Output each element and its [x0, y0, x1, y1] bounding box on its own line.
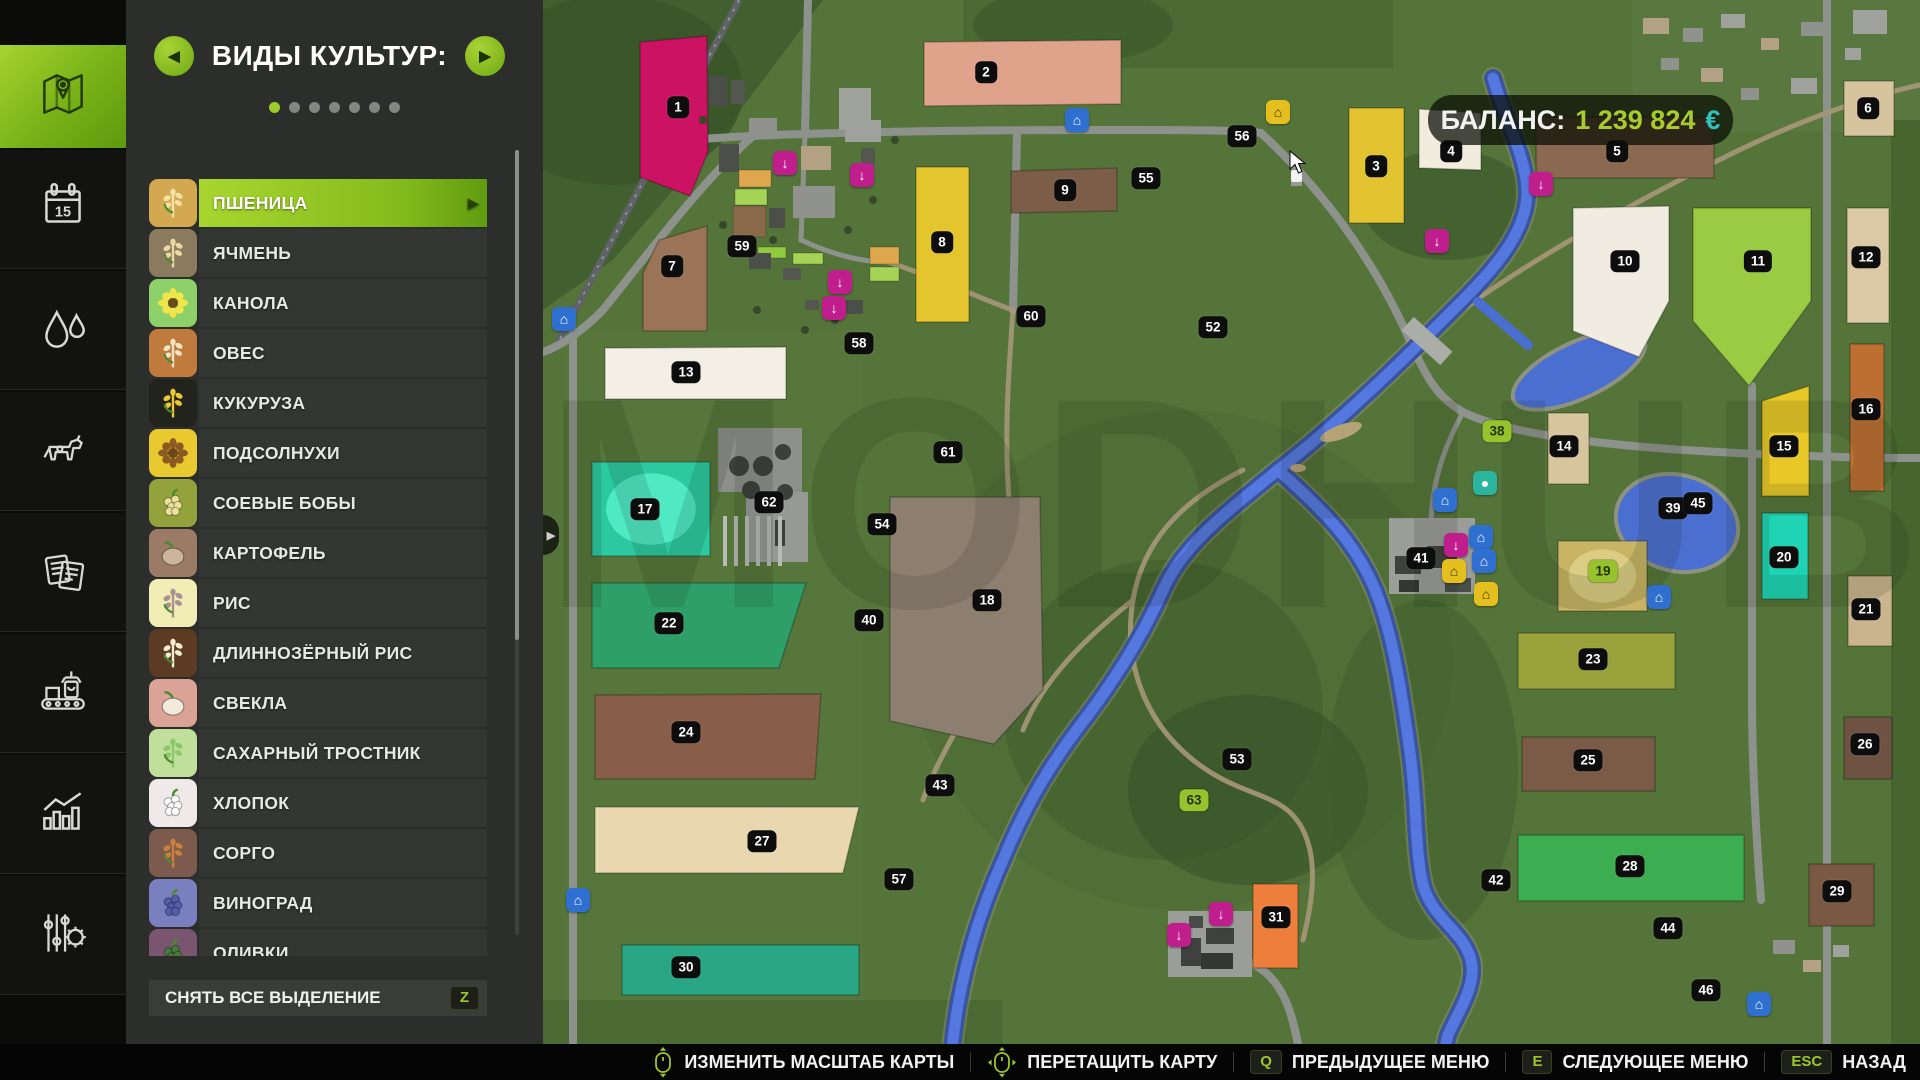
- field-number-badge-16[interactable]: 16: [1851, 398, 1880, 420]
- crop-icon: [149, 679, 197, 727]
- crop-item-11[interactable]: САХАРНЫЙ ТРОСТНИК: [149, 729, 487, 777]
- crop-icon: [149, 929, 197, 956]
- crop-item-5[interactable]: ПОДСОЛНУХИ: [149, 429, 487, 477]
- field-number-badge-27[interactable]: 27: [747, 830, 776, 852]
- keycap-esc: ESC: [1781, 1050, 1832, 1074]
- page-dot-4[interactable]: [349, 102, 360, 113]
- farmhouse-icon[interactable]: ⌂: [1442, 559, 1466, 583]
- field-number-badge-43[interactable]: 43: [925, 774, 954, 796]
- sidebar-contracts-tab[interactable]: [0, 513, 126, 632]
- currency-symbol: €: [1705, 105, 1720, 136]
- hint-mouse-drag-icon[interactable]: ПЕРЕТАЩИТЬ КАРТУ: [987, 1046, 1217, 1078]
- animal-pen-icon[interactable]: ●: [1473, 471, 1497, 495]
- field-number-badge-55[interactable]: 55: [1131, 167, 1160, 189]
- field-number-badge-21[interactable]: 21: [1851, 598, 1880, 620]
- sidebar-production-tab[interactable]: [0, 634, 126, 753]
- crop-item-2[interactable]: КАНОЛА: [149, 279, 487, 327]
- page-dot-1[interactable]: [289, 102, 300, 113]
- crop-item-10[interactable]: СВЕКЛА: [149, 679, 487, 727]
- field-number-badge-31[interactable]: 31: [1261, 906, 1290, 928]
- crop-label: СВЕКЛА: [199, 679, 487, 727]
- clear-selection-label: СНЯТЬ ВСЕ ВЫДЕЛЕНИЕ: [165, 988, 381, 1008]
- sell-point-icon[interactable]: ↓: [822, 296, 846, 320]
- crop-label: САХАРНЫЙ ТРОСТНИК: [199, 729, 487, 777]
- hint-key-e[interactable]: EСЛЕДУЮЩЕЕ МЕНЮ: [1522, 1050, 1748, 1074]
- clear-selection-button[interactable]: СНЯТЬ ВСЕ ВЫДЕЛЕНИЕ Z: [149, 980, 487, 1016]
- farm-icon[interactable]: ⌂: [1266, 100, 1290, 124]
- page-dot-6[interactable]: [389, 102, 400, 113]
- field-number-badge-12[interactable]: 12: [1851, 246, 1880, 268]
- field-number-badge-17[interactable]: 17: [630, 498, 659, 520]
- sidebar-weather-tab[interactable]: [0, 271, 126, 390]
- crop-label: ОВЕС: [199, 329, 487, 377]
- field-number-badge-63[interactable]: 63: [1179, 789, 1208, 811]
- crop-label: ПШЕНИЦА▶: [199, 179, 487, 227]
- market-icon[interactable]: ⌂: [1474, 582, 1498, 606]
- field-number-badge-30[interactable]: 30: [671, 956, 700, 978]
- field-number-badge-18[interactable]: 18: [972, 589, 1001, 611]
- crop-icon: [149, 579, 197, 627]
- crop-label: ПОДСОЛНУХИ: [199, 429, 487, 477]
- page-dot-3[interactable]: [329, 102, 340, 113]
- field-number-badge-23[interactable]: 23: [1578, 648, 1607, 670]
- crop-label: КАРТОФЕЛЬ: [199, 529, 487, 577]
- field-number-badge-61[interactable]: 61: [933, 441, 962, 463]
- crop-list-scrollbar[interactable]: [515, 150, 519, 935]
- field-number-badge-2[interactable]: 2: [975, 61, 997, 83]
- crop-item-0[interactable]: ПШЕНИЦА▶: [149, 179, 487, 227]
- cow-icon: [34, 420, 92, 483]
- bar-chart-icon: [34, 783, 92, 846]
- field-number-badge-52[interactable]: 52: [1198, 316, 1227, 338]
- crop-label: ОЛИВКИ: [199, 929, 487, 956]
- workshop-icon[interactable]: ⌂: [1433, 488, 1457, 512]
- hint-label: ПРЕДЫДУЩЕЕ МЕНЮ: [1292, 1052, 1490, 1073]
- documents-icon: [34, 541, 92, 604]
- balance-display: БАЛАНС: 1 239 824 €: [1428, 95, 1733, 145]
- crop-icon: [149, 629, 197, 677]
- shop-icon[interactable]: ⌂: [1647, 585, 1671, 609]
- field-number-badge-10[interactable]: 10: [1610, 250, 1639, 272]
- crop-item-1[interactable]: ЯЧМЕНЬ: [149, 229, 487, 277]
- crop-item-14[interactable]: ВИНОГРАД: [149, 879, 487, 927]
- crop-icon: [149, 479, 197, 527]
- crop-icon: [149, 279, 197, 327]
- world-map[interactable]: MODHUB ↓↓↓↓↓↓↓↓↓⌂⌂⌂⌂⌂⌂⌂⌂⌂⌂⌂●123456789101…: [543, 0, 1920, 1080]
- mouse-scroll-icon: [652, 1046, 674, 1078]
- field-number-badge-26[interactable]: 26: [1850, 733, 1879, 755]
- separator: [1233, 1052, 1234, 1072]
- field-number-badge-8[interactable]: 8: [931, 231, 953, 253]
- sidebar-settings-tab[interactable]: [0, 876, 126, 995]
- field-number-badge-29[interactable]: 29: [1822, 880, 1851, 902]
- field-number-badge-62[interactable]: 62: [754, 491, 783, 513]
- crop-item-7[interactable]: КАРТОФЕЛЬ: [149, 529, 487, 577]
- sell-point-icon[interactable]: ↓: [1529, 172, 1553, 196]
- crop-item-13[interactable]: СОРГО: [149, 829, 487, 877]
- panel-title: ВИДЫ КУЛЬТУР:: [212, 40, 447, 72]
- field-number-badge-28[interactable]: 28: [1615, 855, 1644, 877]
- crop-types-panel: ◀ ВИДЫ КУЛЬТУР: ▶ ПШЕНИЦА▶ЯЧМЕНЬКАНОЛАОВ…: [126, 0, 543, 1080]
- mouse-drag-icon: [987, 1046, 1017, 1078]
- field-number-badge-7[interactable]: 7: [661, 255, 683, 277]
- fuel-station-icon[interactable]: ⌂: [1065, 108, 1089, 132]
- sell-point-icon[interactable]: ↓: [828, 270, 852, 294]
- balance-value: 1 239 824: [1575, 105, 1695, 136]
- field-number-badge-38[interactable]: 38: [1482, 420, 1511, 442]
- crop-item-4[interactable]: КУКУРУЗА: [149, 379, 487, 427]
- field-number-badge-42[interactable]: 42: [1481, 869, 1510, 891]
- field-number-badge-19[interactable]: 19: [1588, 560, 1617, 582]
- crop-icon: [149, 329, 197, 377]
- field-number-badge-54[interactable]: 54: [867, 513, 896, 535]
- hint-label: ИЗМЕНИТЬ МАСШТАБ КАРТЫ: [684, 1052, 954, 1073]
- sell-point-icon[interactable]: ↓: [1209, 902, 1233, 926]
- crop-item-8[interactable]: РИС: [149, 579, 487, 627]
- field-number-badge-40[interactable]: 40: [854, 609, 883, 631]
- dealer-icon[interactable]: ⌂: [1472, 549, 1496, 573]
- field-number-badge-46[interactable]: 46: [1691, 979, 1720, 1001]
- field-number-badge-41[interactable]: 41: [1406, 547, 1435, 569]
- keycap-q: Q: [1250, 1050, 1282, 1074]
- svg-text:15: 15: [55, 204, 71, 220]
- crop-item-12[interactable]: ХЛОПОК: [149, 779, 487, 827]
- sell-point-icon[interactable]: ↓: [850, 163, 874, 187]
- crop-label: КУКУРУЗА: [199, 379, 487, 427]
- crop-icon: [149, 179, 197, 227]
- sell-point-icon[interactable]: ↓: [1425, 229, 1449, 253]
- crop-label: ДЛИННОЗЁРНЫЙ РИС: [199, 629, 487, 677]
- crop-label: ЯЧМЕНЬ: [199, 229, 487, 277]
- crop-icon: [149, 779, 197, 827]
- crop-icon: [149, 829, 197, 877]
- separator: [1764, 1052, 1765, 1072]
- prev-page-button[interactable]: ◀: [154, 36, 194, 76]
- field-number-badge-24[interactable]: 24: [671, 721, 700, 743]
- water-drops-icon: [34, 299, 92, 362]
- crop-icon: [149, 229, 197, 277]
- hint-label: СЛЕДУЮЩЕЕ МЕНЮ: [1562, 1052, 1748, 1073]
- map-icon: [34, 65, 92, 128]
- field-number-badge-13[interactable]: 13: [671, 361, 700, 383]
- crop-item-15[interactable]: ОЛИВКИ: [149, 929, 487, 956]
- sell-point-icon[interactable]: ↓: [773, 151, 797, 175]
- selected-arrow-icon: ▶: [468, 195, 479, 212]
- conveyor-icon: [34, 662, 92, 725]
- hint-mouse-scroll-icon[interactable]: ИЗМЕНИТЬ МАСШТАБ КАРТЫ: [652, 1046, 954, 1078]
- crop-label: ВИНОГРАД: [199, 879, 487, 927]
- bottom-hint-bar: ИЗМЕНИТЬ МАСШТАБ КАРТЫПЕРЕТАЩИТЬ КАРТУQП…: [0, 1044, 1920, 1080]
- game-screen: MODHUB ↓↓↓↓↓↓↓↓↓⌂⌂⌂⌂⌂⌂⌂⌂⌂⌂⌂●123456789101…: [0, 0, 1920, 1080]
- page-dot-2[interactable]: [309, 102, 320, 113]
- fuel-station-icon[interactable]: ⌂: [566, 888, 590, 912]
- crop-item-6[interactable]: СОЕВЫЕ БОБЫ: [149, 479, 487, 527]
- field-number-badge-44[interactable]: 44: [1653, 917, 1682, 939]
- field-number-badge-14[interactable]: 14: [1549, 435, 1578, 457]
- next-page-button[interactable]: ▶: [465, 36, 505, 76]
- field-number-badge-6[interactable]: 6: [1857, 97, 1879, 119]
- field-number-badge-53[interactable]: 53: [1222, 748, 1251, 770]
- field-number-badge-58[interactable]: 58: [844, 332, 873, 354]
- hint-label: НАЗАД: [1842, 1052, 1906, 1073]
- crop-icon: [149, 879, 197, 927]
- sell-point-icon[interactable]: ↓: [1444, 533, 1468, 557]
- field-number-badge-15[interactable]: 15: [1769, 435, 1798, 457]
- dealer-icon[interactable]: ⌂: [1469, 525, 1493, 549]
- crop-icon: [149, 429, 197, 477]
- page-dot-0[interactable]: [269, 102, 280, 113]
- crop-item-3[interactable]: ОВЕС: [149, 329, 487, 377]
- sliders-gear-icon: [34, 904, 92, 967]
- page-dot-5[interactable]: [369, 102, 380, 113]
- key-hint-z: Z: [450, 986, 479, 1010]
- hint-key-q[interactable]: QПРЕДЫДУЩЕЕ МЕНЮ: [1250, 1050, 1489, 1074]
- shop-icon[interactable]: ⌂: [1747, 992, 1771, 1016]
- crop-list: ПШЕНИЦА▶ЯЧМЕНЬКАНОЛАОВЕСКУКУРУЗАПОДСОЛНУ…: [149, 179, 487, 956]
- field-number-badge-9[interactable]: 9: [1054, 179, 1076, 201]
- field-number-badge-59[interactable]: 59: [727, 235, 756, 257]
- crop-label: СОЕВЫЕ БОБЫ: [199, 479, 487, 527]
- field-number-badge-25[interactable]: 25: [1573, 749, 1602, 771]
- crop-icon: [149, 729, 197, 777]
- sidebar-animals-tab[interactable]: [0, 392, 126, 511]
- sidebar-rail: 15: [0, 0, 126, 1080]
- sidebar-calendar-tab[interactable]: 15: [0, 150, 126, 269]
- sell-point-icon[interactable]: ↓: [1167, 923, 1191, 947]
- crop-icon: [149, 529, 197, 577]
- mouse-cursor: [1289, 150, 1311, 176]
- fuel-station-icon[interactable]: ⌂: [552, 307, 576, 331]
- separator: [1505, 1052, 1506, 1072]
- hint-key-esc[interactable]: ESCНАЗАД: [1781, 1050, 1906, 1074]
- sidebar-map-tab[interactable]: [0, 45, 126, 148]
- balance-label: БАЛАНС:: [1441, 105, 1566, 136]
- field-number-badge-1[interactable]: 1: [667, 96, 689, 118]
- crop-label: СОРГО: [199, 829, 487, 877]
- field-number-badge-22[interactable]: 22: [654, 612, 683, 634]
- page-dots: [126, 102, 543, 113]
- calendar-icon: 15: [34, 178, 92, 241]
- crop-label: ХЛОПОК: [199, 779, 487, 827]
- field-number-badge-45[interactable]: 45: [1683, 492, 1712, 514]
- separator: [970, 1052, 971, 1072]
- field-number-badge-57[interactable]: 57: [884, 868, 913, 890]
- field-number-badge-11[interactable]: 11: [1744, 250, 1772, 272]
- field-number-badge-56[interactable]: 56: [1227, 125, 1256, 147]
- field-number-badge-60[interactable]: 60: [1016, 305, 1045, 327]
- field-number-badge-3[interactable]: 3: [1365, 155, 1387, 177]
- sidebar-statistics-tab[interactable]: [0, 755, 126, 874]
- hint-label: ПЕРЕТАЩИТЬ КАРТУ: [1027, 1052, 1217, 1073]
- crop-label: КАНОЛА: [199, 279, 487, 327]
- field-number-badge-20[interactable]: 20: [1769, 546, 1798, 568]
- crop-item-9[interactable]: ДЛИННОЗЁРНЫЙ РИС: [149, 629, 487, 677]
- crop-icon: [149, 379, 197, 427]
- keycap-e: E: [1522, 1050, 1552, 1074]
- crop-label: РИС: [199, 579, 487, 627]
